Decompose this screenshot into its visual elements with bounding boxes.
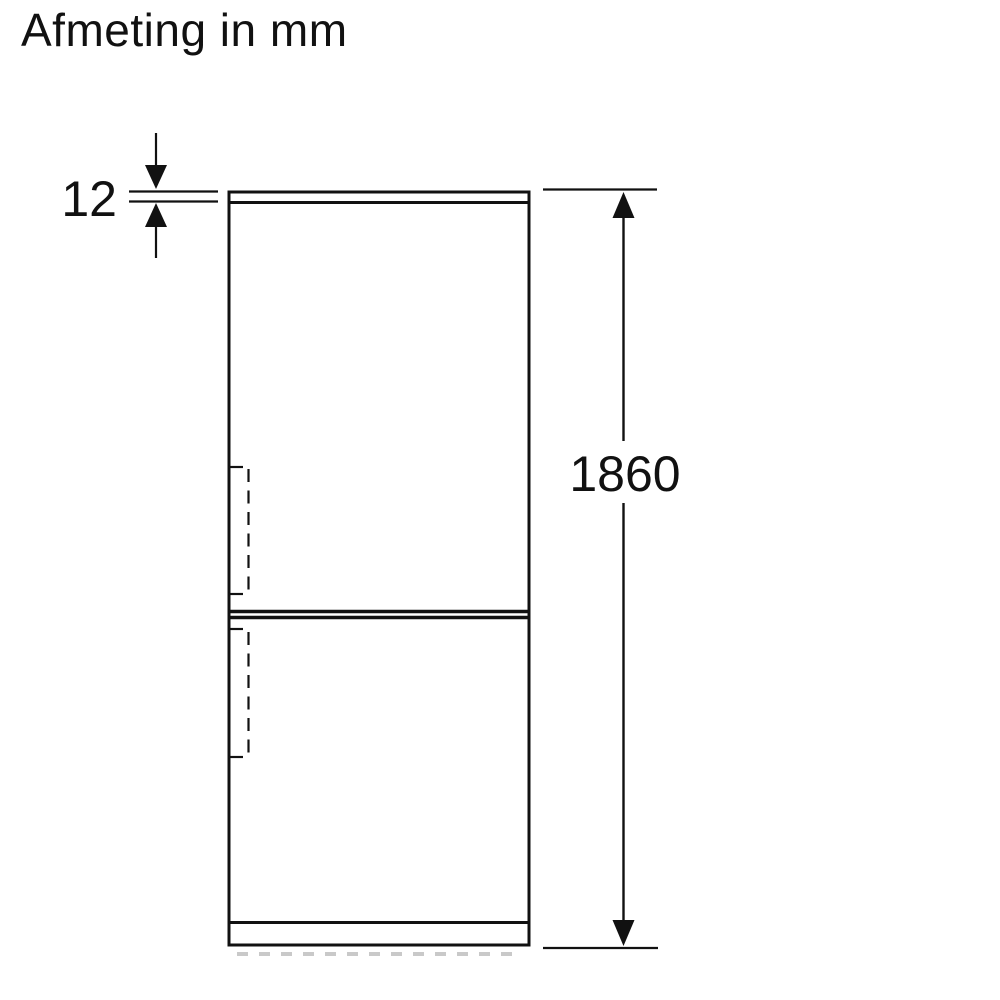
dim1860-label: 1860: [569, 446, 680, 502]
dim12-arrowhead-up-icon: [145, 203, 167, 227]
dim1860-arrowhead-down-icon: [613, 920, 635, 946]
appliance-drawing: 12 1860: [0, 0, 1000, 1000]
dim12-arrowhead-down-icon: [145, 165, 167, 189]
dimension-diagram: Afmeting in mm: [0, 0, 1000, 1000]
dim1860-arrowhead-up-icon: [613, 192, 635, 218]
dim12-label: 12: [61, 171, 117, 227]
dimension-top-thickness: 12: [61, 133, 218, 258]
dimension-total-height: 1860: [543, 190, 681, 949]
fridge-outline: [228, 192, 530, 954]
fridge-body-rect: [229, 192, 529, 945]
